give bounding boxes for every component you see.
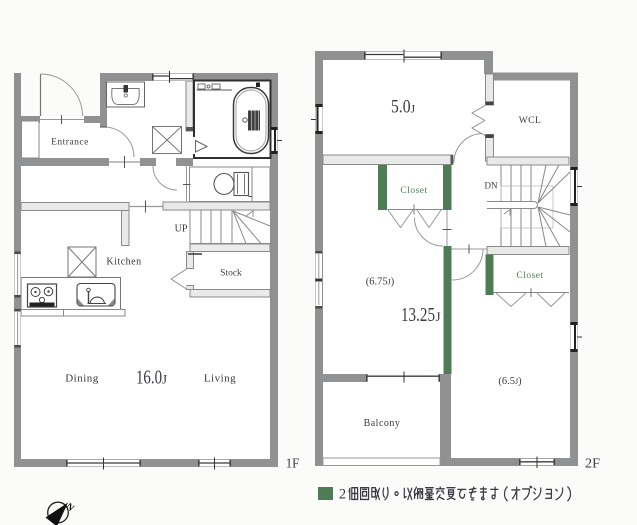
svg-text:J: J	[411, 102, 416, 116]
svg-text:(6.75J): (6.75J)	[366, 277, 395, 288]
svg-text:Entrance: Entrance	[51, 138, 89, 148]
svg-text:Kitchen: Kitchen	[106, 257, 141, 268]
svg-text:Closet: Closet	[516, 271, 543, 281]
svg-text:J: J	[436, 309, 441, 324]
svg-text:J: J	[162, 372, 167, 387]
svg-text:16.0: 16.0	[136, 367, 162, 389]
svg-text:WCL: WCL	[519, 116, 542, 126]
svg-text:2F: 2F	[585, 456, 601, 471]
svg-text:Living: Living	[204, 373, 236, 385]
svg-text:Dining: Dining	[65, 373, 99, 385]
svg-text:(6.5J): (6.5J)	[498, 376, 522, 387]
svg-text:DN: DN	[485, 181, 498, 191]
svg-text:5.0: 5.0	[391, 98, 411, 118]
svg-text:Closet: Closet	[400, 186, 427, 196]
svg-text:1F: 1F	[286, 455, 300, 470]
svg-text:Stock: Stock	[220, 269, 242, 279]
svg-text:UP: UP	[175, 224, 188, 235]
svg-text:2: 2	[339, 487, 346, 503]
svg-text:13.25: 13.25	[401, 304, 435, 326]
svg-text:Balcony: Balcony	[364, 418, 401, 429]
